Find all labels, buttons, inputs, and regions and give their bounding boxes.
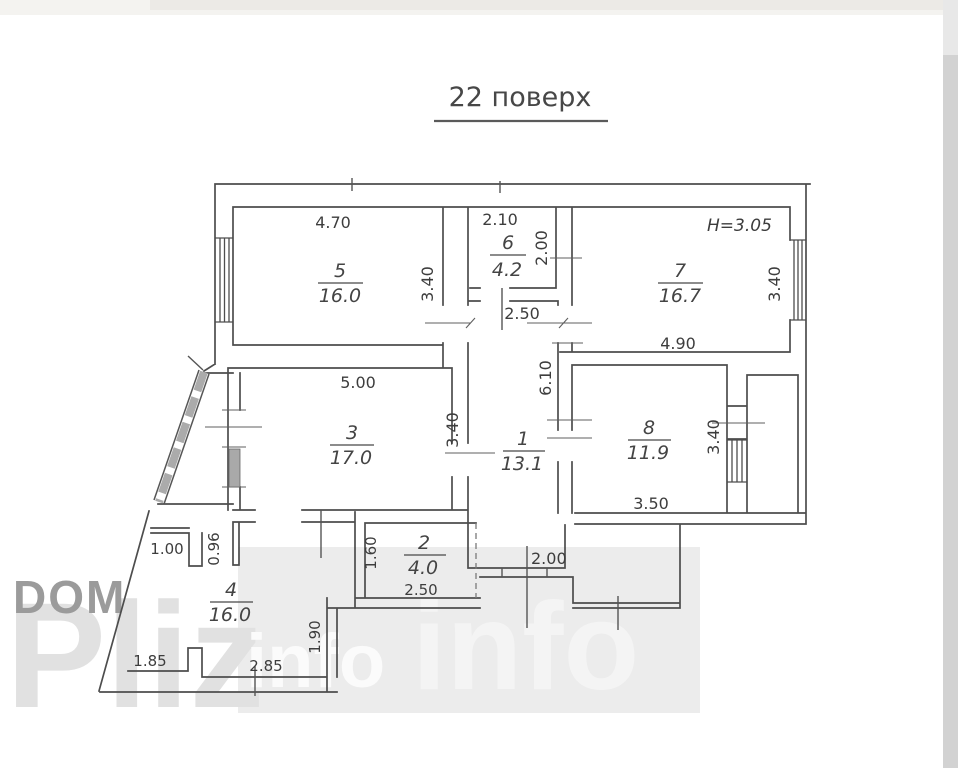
floor-plan-svg: 22 поверх 5 16.0 6 4.2 7 16.7 3 17.0 1 [0, 0, 958, 768]
window-filled-room3 [229, 449, 240, 487]
room6-number: 6 [502, 232, 514, 254]
dim-opening-100: 1.00 [150, 540, 183, 558]
dim-hall-width: 2.50 [504, 304, 540, 323]
room4-area: 16.0 [209, 604, 251, 626]
room8-number: 8 [643, 417, 655, 439]
room6-area: 4.2 [492, 259, 522, 281]
room2-area: 4.0 [408, 557, 438, 579]
room2-number: 2 [418, 532, 430, 554]
dim-room6-width: 2.10 [482, 210, 518, 229]
room3-area: 17.0 [330, 447, 372, 469]
balcony-slant-hatch [159, 372, 204, 502]
dim-pier-096: 0.96 [205, 532, 223, 565]
dim-room3-depth: 3.40 [443, 412, 462, 448]
room1-area: 13.1 [501, 453, 543, 475]
dim-room2-width: 2.50 [404, 581, 437, 599]
dim-hall-depth: 6.10 [536, 360, 555, 396]
scanned-floor-plan-page: Pliz info info DOM 22 поверх 5 16.0 6 4.… [0, 0, 958, 768]
dim-room5-depth: 3.40 [418, 266, 437, 302]
dim-room7-width: 4.90 [660, 334, 696, 353]
room5-area: 16.0 [319, 285, 361, 307]
dim-entry-width: 2.00 [531, 549, 567, 568]
room7-number: 7 [674, 260, 686, 282]
dim-room3-width: 5.00 [340, 373, 376, 392]
balcony-slant-edge-outer [154, 370, 199, 500]
room1-number: 1 [517, 428, 529, 450]
dim-bottom-285: 2.85 [249, 657, 282, 675]
dim-room6-depth: 2.00 [532, 230, 551, 266]
dim-bottom-185: 1.85 [133, 652, 166, 670]
dim-room7-depth: 3.40 [765, 266, 784, 302]
dim-room5-width: 4.70 [315, 213, 351, 232]
room4-number: 4 [225, 579, 237, 601]
page-title: 22 поверх [449, 82, 592, 113]
balcony-slant-edge-inner [164, 374, 209, 504]
dim-room8-width: 3.50 [633, 494, 669, 513]
dim-room8-depth: 3.40 [704, 419, 723, 455]
dim-ceiling-height: H=3.05 [707, 216, 772, 236]
room8-area: 11.9 [627, 442, 669, 464]
dim-right-190: 1.90 [306, 620, 324, 653]
room5-number: 5 [334, 260, 346, 282]
room3-number: 3 [346, 422, 358, 444]
dim-room2-depth: 1.60 [362, 536, 380, 569]
room7-area: 16.7 [659, 285, 701, 307]
door-swings-and-ticks [188, 178, 618, 696]
